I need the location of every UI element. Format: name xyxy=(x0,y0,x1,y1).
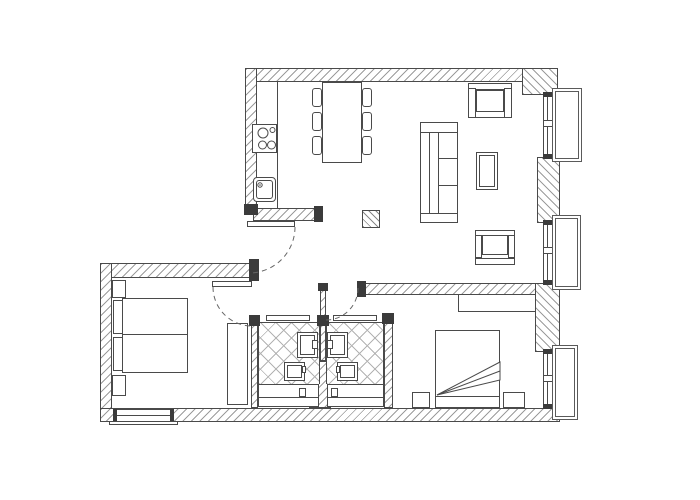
armchair-bottom-arm xyxy=(475,235,482,258)
wall-kitchen-partition xyxy=(253,208,315,221)
wall-top xyxy=(245,68,558,82)
dining-chair xyxy=(362,136,372,155)
bathtub-handle xyxy=(299,388,306,397)
nightstand xyxy=(412,392,430,408)
wall-bath-right xyxy=(384,316,393,408)
window-sill xyxy=(552,345,578,420)
sofa-cushion-seam xyxy=(438,185,457,186)
wall-right-pier-upper xyxy=(537,157,560,223)
sofa-armrest xyxy=(421,132,457,133)
bathroom-sliding-door xyxy=(333,315,377,321)
bathtub-handle xyxy=(331,388,338,397)
washbasin-tap xyxy=(312,340,318,349)
bed-left xyxy=(122,298,188,373)
dining-chair xyxy=(312,112,322,131)
floor-plan xyxy=(0,0,700,500)
wall-right-pier-lower xyxy=(535,283,560,352)
dining-chair xyxy=(312,88,322,107)
sofa-armrest xyxy=(421,213,457,214)
wardrobe-left xyxy=(227,323,248,405)
washbasin-tap xyxy=(327,340,333,349)
sofa-cushion-seam xyxy=(438,158,457,159)
window-sill xyxy=(109,421,178,425)
dining-table xyxy=(322,82,362,163)
window-glass-line xyxy=(113,415,174,416)
wall-jamb xyxy=(317,315,329,326)
wall-jamb xyxy=(249,259,259,281)
armchair-bottom-arm xyxy=(508,235,515,258)
wall-jamb xyxy=(249,315,260,326)
window-sill xyxy=(552,215,581,290)
wardrobe-right xyxy=(458,294,536,312)
wall-bath-left xyxy=(251,318,258,408)
kitchen-counter-edge xyxy=(277,82,278,208)
wall-jamb xyxy=(314,206,323,222)
wall-jamb xyxy=(244,204,258,215)
armchair-top-arm xyxy=(468,88,476,118)
sofa-back xyxy=(429,132,430,213)
window-sill xyxy=(552,88,582,162)
pillow xyxy=(113,300,123,334)
armchair-bottom-seat xyxy=(482,235,508,255)
dining-chair xyxy=(312,136,322,155)
coffee-table-inner xyxy=(479,155,495,187)
bed-right-foot-line xyxy=(435,396,500,397)
bed-left-mattress-split xyxy=(122,334,188,335)
bedroom-left-door-leaf xyxy=(212,281,252,287)
toilet-bowl xyxy=(340,365,355,378)
entry-door-leaf xyxy=(247,221,295,227)
wall-left xyxy=(100,263,112,422)
side-table-hatched xyxy=(362,210,380,228)
stove xyxy=(252,124,277,153)
room-hallway xyxy=(257,221,318,320)
wall-jamb xyxy=(382,313,394,324)
armchair-bottom-back xyxy=(475,258,515,265)
dining-chair xyxy=(362,88,372,107)
dining-chair xyxy=(362,112,372,131)
armchair-top-arm xyxy=(504,88,512,118)
nightstand xyxy=(503,392,525,408)
toilet-bowl xyxy=(287,365,302,378)
bathtub xyxy=(258,384,319,407)
bathtub-edge xyxy=(328,397,383,398)
armchair-top-seat xyxy=(476,90,504,112)
nightstand xyxy=(112,280,126,298)
wall-jamb xyxy=(357,281,366,297)
kitchen-sink-bowl xyxy=(256,180,273,199)
toilet-tap xyxy=(336,366,340,373)
wall-jamb xyxy=(318,283,328,291)
nightstand xyxy=(112,375,126,396)
sofa-back xyxy=(438,132,439,213)
pillow xyxy=(113,337,123,371)
sofa xyxy=(420,122,458,223)
toilet-tap xyxy=(302,366,306,373)
bathtub-edge xyxy=(259,397,318,398)
bathroom-sliding-door xyxy=(266,315,310,321)
wall-bedroom-left-top xyxy=(100,263,258,278)
